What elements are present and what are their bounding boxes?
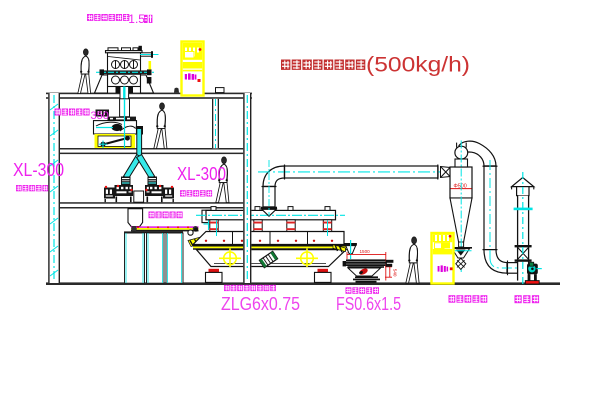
svg-text:540: 540	[392, 269, 397, 277]
svg-text:(500kg/h): (500kg/h)	[366, 53, 470, 77]
svg-text:XL-300: XL-300	[13, 159, 64, 180]
svg-text:1.5: 1.5	[128, 12, 145, 26]
svg-text:XL-300: XL-300	[177, 163, 226, 184]
svg-text:1500: 1500	[360, 249, 371, 254]
svg-text:ZLG6x0.75: ZLG6x0.75	[221, 294, 300, 314]
svg-text:FS0.6x1.5: FS0.6x1.5	[336, 294, 401, 314]
svg-text:Φ500: Φ500	[454, 184, 467, 190]
svg-text:350: 350	[91, 110, 109, 122]
